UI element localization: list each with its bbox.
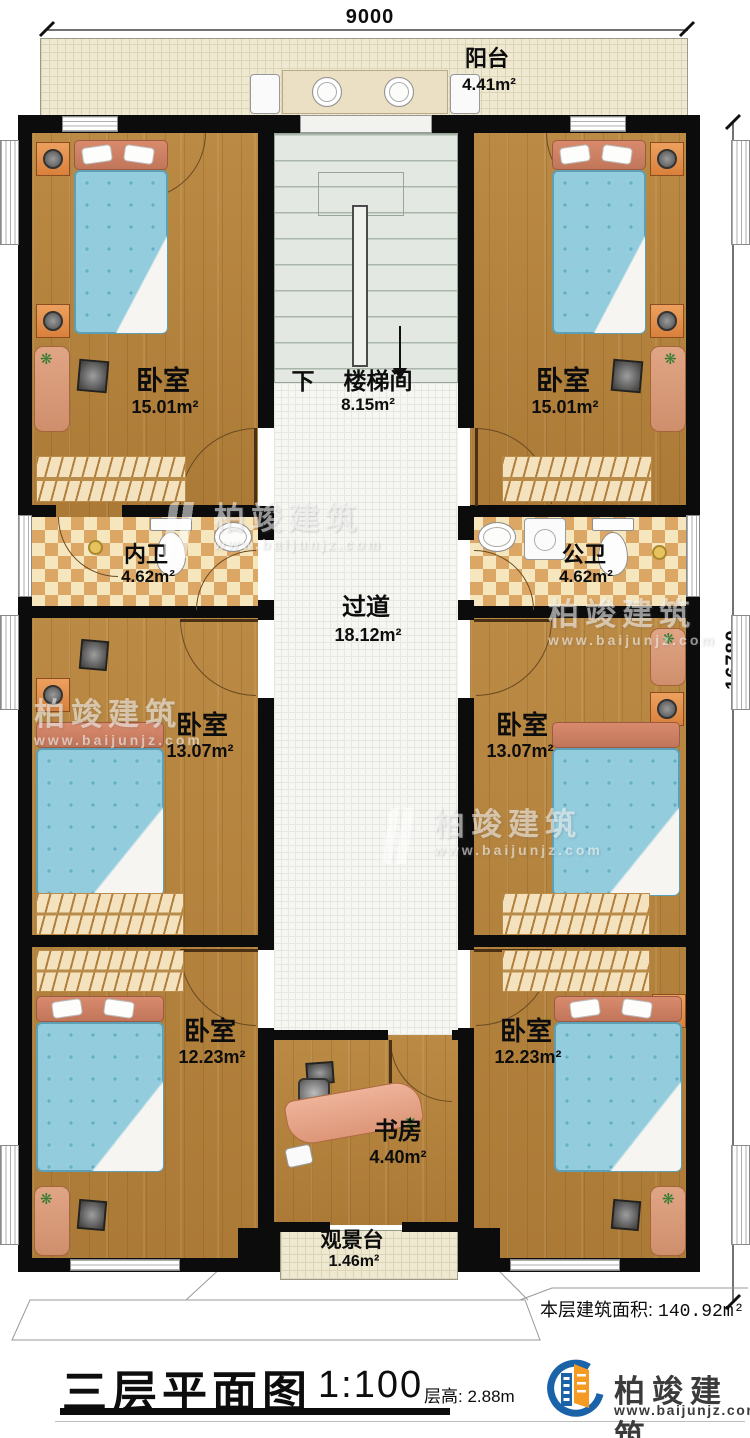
nightstand (36, 304, 70, 338)
wall (402, 1222, 458, 1232)
window (686, 515, 700, 597)
wall (274, 1030, 388, 1040)
company-website: www.baijunjz.com (614, 1402, 750, 1418)
window (570, 116, 626, 132)
bay-window (0, 1145, 19, 1245)
stair-arrow-line (399, 326, 401, 370)
washing-machine (524, 518, 566, 560)
wall (18, 115, 32, 1272)
wardrobe (502, 893, 650, 935)
tv (611, 359, 644, 393)
stairwell-label: 楼梯间 (344, 370, 413, 393)
bath-sink-icon (478, 522, 516, 552)
bedroom-tr-area: 15.01m² (531, 398, 598, 416)
door-leaf (475, 428, 478, 506)
balcony-area: 4.41m² (462, 76, 516, 93)
plant-icon: ❋ (40, 1192, 53, 1207)
wall (122, 505, 258, 517)
nightstand (650, 692, 684, 726)
company-logo-icon (544, 1358, 608, 1422)
balcony-label: 阳台 (465, 48, 509, 70)
bath-right-area: 4.62m² (559, 568, 613, 585)
plant-icon: ❋ (40, 352, 53, 367)
plant-icon: ❋ (662, 632, 675, 647)
stair-railing (352, 205, 368, 367)
study-label: 书房 (374, 1120, 422, 1144)
bedroom-bl-label: 卧室 (184, 1018, 236, 1044)
tv (79, 639, 110, 671)
bedroom-bl-area: 12.23m² (178, 1048, 245, 1066)
wardrobe (36, 456, 186, 502)
bath-left-label: 内卫 (124, 544, 168, 566)
bay-window (731, 615, 750, 710)
window (62, 116, 118, 132)
tv (611, 1199, 642, 1231)
tv (77, 359, 110, 393)
bedroom-br-label: 卧室 (500, 1018, 552, 1044)
corridor-area: 18.12m² (334, 626, 401, 644)
study-area: 4.40m² (369, 1148, 426, 1166)
wall (32, 935, 258, 947)
floor-area-label: 本层建筑面积: (540, 1300, 653, 1320)
bedroom-br-area: 12.23m² (494, 1048, 561, 1066)
door-leaf (254, 428, 257, 506)
wall (458, 698, 474, 950)
wardrobe (36, 950, 184, 992)
bedroom-tr-label: 卧室 (536, 368, 590, 395)
bath-right-label: 公卫 (562, 544, 606, 566)
view-deck-label: 观景台 (321, 1230, 384, 1251)
dimension-width-label: 9000 (330, 6, 410, 29)
wall (458, 133, 474, 428)
bed (552, 748, 680, 896)
wall (258, 506, 274, 540)
tv (77, 1199, 108, 1231)
wall (258, 133, 274, 428)
bay-window (731, 1145, 750, 1245)
stair-down-label: 下 (292, 370, 315, 393)
nightstand (650, 142, 684, 176)
stairwell-area: 8.15m² (341, 396, 395, 413)
door-leaf (474, 619, 552, 622)
wardrobe (502, 950, 650, 992)
bed (74, 170, 168, 334)
bedroom-mr-label: 卧室 (496, 712, 548, 738)
wardrobe (36, 893, 184, 935)
bed (36, 1022, 164, 1172)
bay-window (0, 140, 19, 245)
bedroom-tl-label: 卧室 (136, 368, 190, 395)
bath-lamp-icon (88, 540, 103, 555)
room-corridor (274, 383, 458, 1035)
bay-window (731, 140, 750, 245)
balcony-counter (282, 70, 448, 114)
balcony-door-opening (300, 115, 432, 133)
window (510, 1259, 620, 1271)
nightstand (36, 142, 70, 176)
floor-area-value: 140.92m² (658, 1302, 744, 1322)
wall (470, 935, 686, 947)
bed-headboard (36, 722, 164, 748)
floor-height-label: 层高: 2.88m (424, 1382, 515, 1407)
toilet (150, 518, 192, 531)
balcony-sink-icon (384, 77, 414, 107)
drawing-scale: 1:100 (318, 1364, 423, 1407)
bed-headboard (552, 722, 680, 748)
floor-plan-canvas: 9000 16780 阳台 4.41m² (0, 0, 750, 1438)
wall (452, 1030, 458, 1040)
wall (686, 115, 700, 1272)
view-deck-area: 1.46m² (329, 1254, 380, 1270)
door-leaf (180, 949, 258, 952)
bay-window (0, 615, 19, 710)
nightstand (650, 304, 684, 338)
balcony-cabinet (250, 74, 280, 114)
plant-icon: ❋ (662, 1192, 675, 1207)
bath-sink-icon (214, 522, 252, 552)
corridor-label: 过道 (342, 596, 390, 620)
bed (36, 748, 164, 896)
bedroom-ml-area: 13.07m² (166, 742, 233, 760)
window (70, 1259, 180, 1271)
wardrobe (502, 456, 652, 502)
nightstand (36, 678, 70, 712)
bath-lamp-icon (652, 545, 667, 560)
door-leaf (180, 619, 258, 622)
toilet (592, 518, 634, 531)
title-underline (60, 1408, 450, 1415)
wall (458, 1228, 500, 1272)
window (18, 515, 32, 597)
wall (470, 505, 686, 517)
plant-icon: ❋ (664, 352, 677, 367)
wall (258, 600, 274, 620)
bed (552, 170, 646, 334)
wall (32, 505, 56, 517)
bedroom-tl-area: 15.01m² (131, 398, 198, 416)
bath-left-area: 4.62m² (121, 568, 175, 585)
wall (238, 1228, 280, 1272)
floor-area-note: 本层建筑面积: 140.92m² (540, 1296, 744, 1322)
bedroom-ml-label: 卧室 (176, 712, 228, 738)
bed (554, 1022, 682, 1172)
balcony-sink-icon (312, 77, 342, 107)
wall (258, 698, 274, 950)
bedroom-mr-area: 13.07m² (486, 742, 553, 760)
